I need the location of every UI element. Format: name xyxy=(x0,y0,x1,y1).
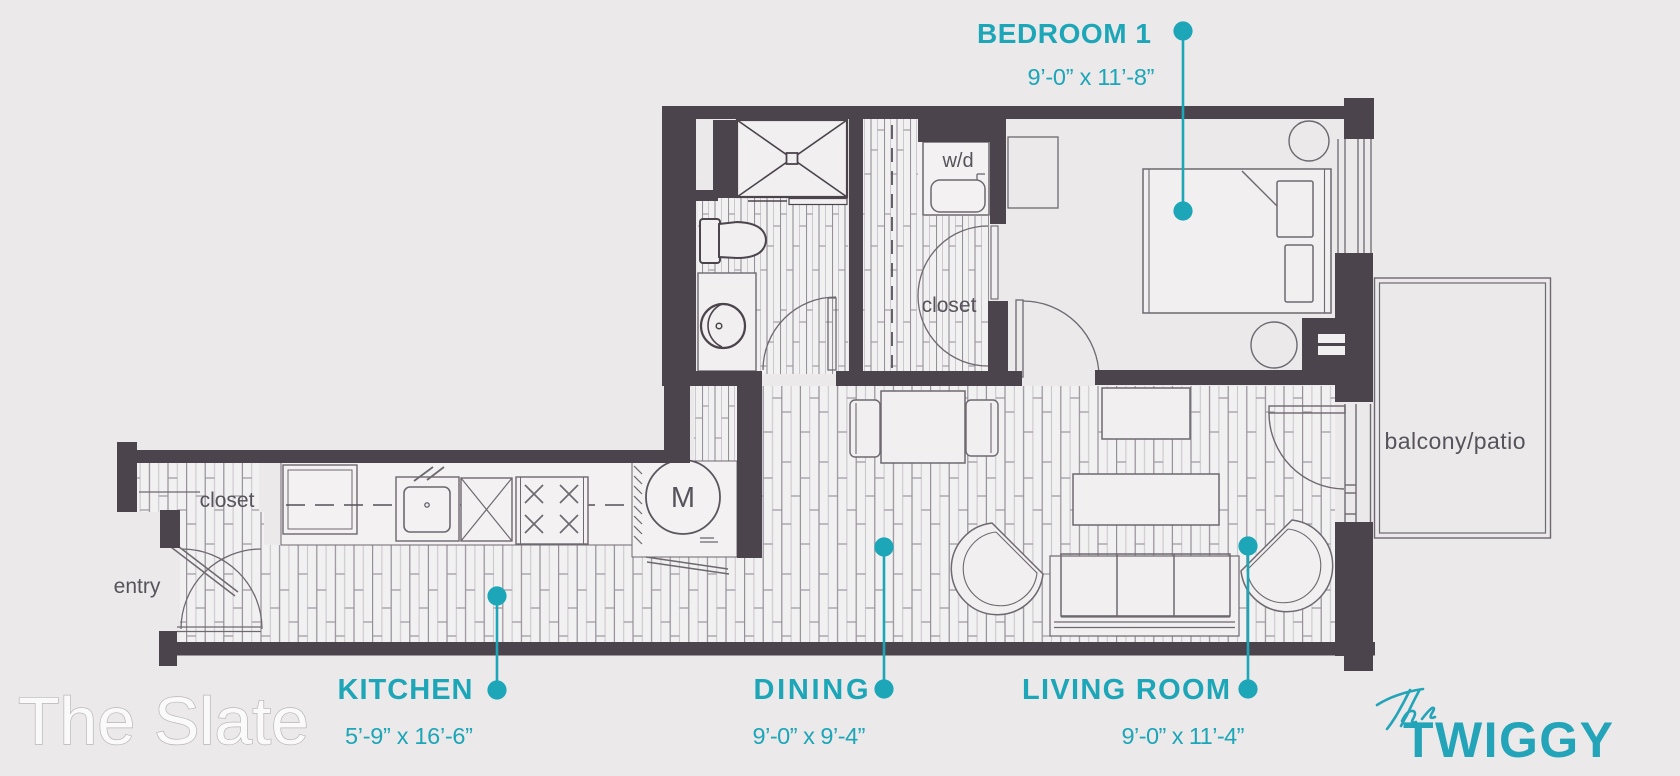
svg-text:closet: closet xyxy=(200,489,255,512)
svg-text:9’-0” x 11’-8”: 9’-0” x 11’-8” xyxy=(1028,64,1155,90)
svg-text:M: M xyxy=(671,482,695,514)
svg-text:BEDROOM 1: BEDROOM 1 xyxy=(977,18,1151,49)
svg-text:entry: entry xyxy=(114,575,161,598)
svg-text:w/d: w/d xyxy=(941,150,973,172)
svg-text:KITCHEN: KITCHEN xyxy=(338,674,473,706)
svg-text:DINING: DINING xyxy=(754,674,869,706)
svg-text:closet: closet xyxy=(922,294,977,317)
svg-text:LIVING ROOM: LIVING ROOM xyxy=(1022,674,1230,706)
svg-text:The Slate: The Slate xyxy=(18,684,309,759)
svg-text:9’-0” x 11’-4”: 9’-0” x 11’-4” xyxy=(1122,723,1245,749)
svg-text:9’-0” x 9’-4”: 9’-0” x 9’-4” xyxy=(753,723,866,749)
svg-text:5’-9” x 16’-6”: 5’-9” x 16’-6” xyxy=(345,723,473,749)
svg-text:balcony/patio: balcony/patio xyxy=(1385,428,1526,454)
svg-text:TWIGGY: TWIGGY xyxy=(1403,712,1613,768)
